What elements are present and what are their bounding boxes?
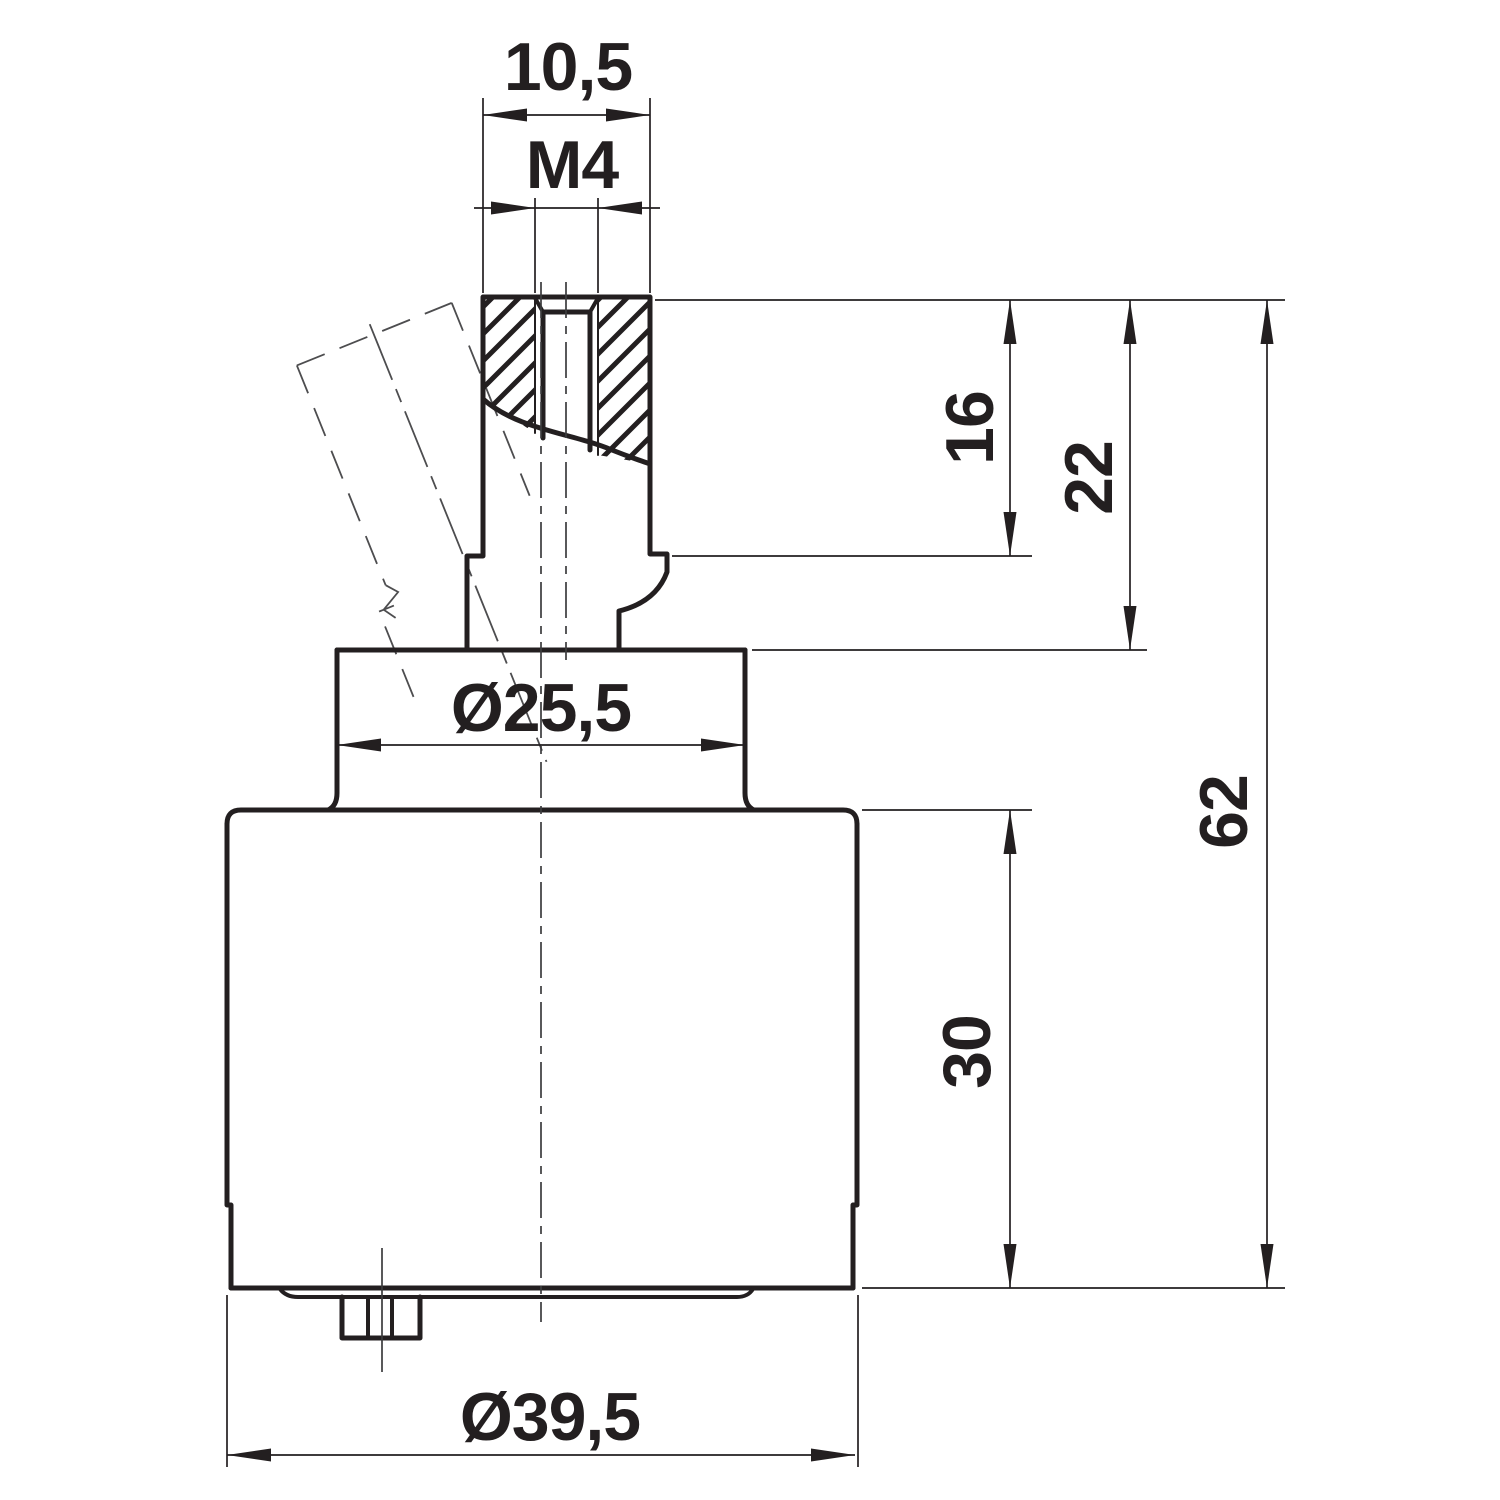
centerlines: [382, 282, 566, 1372]
body-left-edge: [227, 824, 231, 1288]
dim-thread-label: M4: [526, 127, 620, 203]
dimension-labels: 10,5 M4 Ø25,5 Ø39,5 16 22 62 30: [451, 29, 1262, 1455]
drawing-canvas: 10,5 M4 Ø25,5 Ø39,5 16 22 62 30: [0, 0, 1500, 1500]
collar-right-edge: [745, 650, 754, 810]
bottom-tab-ribs: [368, 1297, 392, 1338]
dim-collar-diameter-label: Ø25,5: [451, 670, 631, 746]
dim-30-label: 30: [929, 1015, 1005, 1089]
body-right-edge: [853, 824, 857, 1288]
phantom-flange-edge: [385, 626, 413, 696]
thread-chamfer-right: [590, 298, 598, 312]
dim-body-diameter-label: Ø39,5: [460, 1379, 640, 1455]
phantom-right-edge: [452, 303, 530, 496]
dim-22-label: 22: [1051, 441, 1127, 515]
phantom-left-edge: [297, 365, 386, 585]
dim-spindle-width-label: 10,5: [504, 29, 632, 105]
phantom-break-zigzag: [375, 582, 406, 621]
part-outline: [227, 297, 857, 1338]
bottom-tab-outline: [342, 1297, 420, 1338]
dim-16-label: 16: [932, 391, 1008, 465]
dim-62-label: 62: [1186, 775, 1262, 849]
technical-drawing: 10,5 M4 Ø25,5 Ø39,5 16 22 62 30: [0, 0, 1500, 1500]
body-top-edge: [227, 810, 857, 824]
extension-lines: [227, 98, 1285, 1467]
collar-left-edge: [328, 650, 337, 810]
section-hatching: [320, 280, 834, 470]
